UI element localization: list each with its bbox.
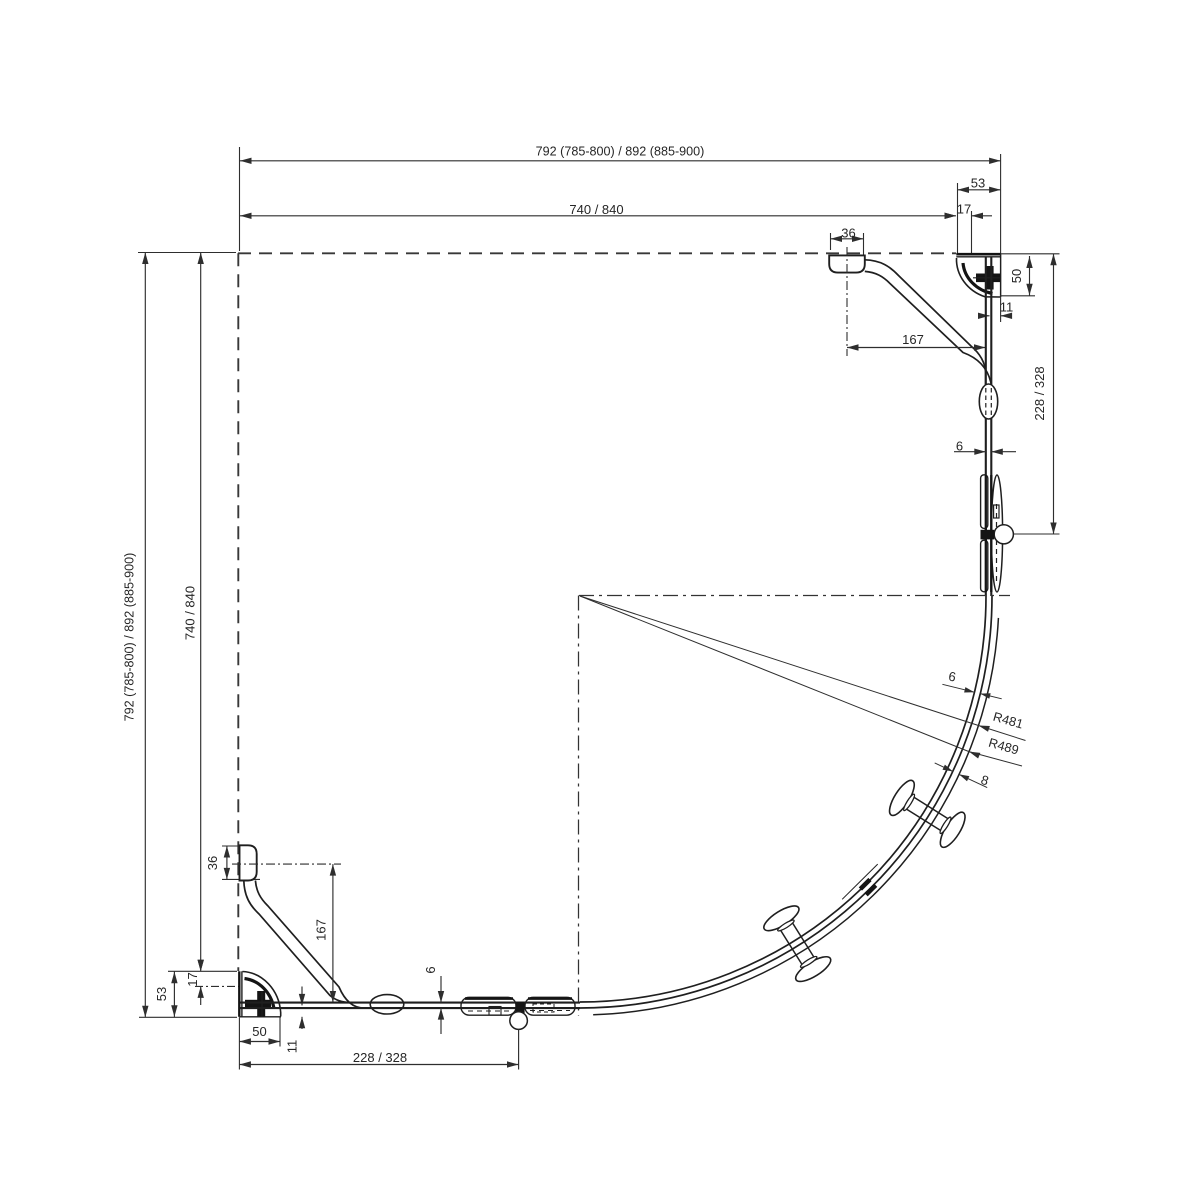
svg-text:11: 11 <box>1000 300 1014 315</box>
svg-text:740 / 840: 740 / 840 <box>569 202 623 217</box>
svg-text:6: 6 <box>956 439 963 454</box>
svg-text:11: 11 <box>285 1040 300 1054</box>
svg-text:36: 36 <box>841 226 855 241</box>
svg-text:50: 50 <box>1009 269 1024 283</box>
svg-text:740 / 840: 740 / 840 <box>183 586 198 640</box>
svg-text:17: 17 <box>957 202 971 217</box>
svg-text:792 (785-800) / 892 (885-900): 792 (785-800) / 892 (885-900) <box>123 553 137 722</box>
svg-text:6: 6 <box>423 966 438 973</box>
svg-text:167: 167 <box>314 919 329 941</box>
svg-text:228 / 328: 228 / 328 <box>353 1050 407 1065</box>
svg-text:228 / 328: 228 / 328 <box>1032 366 1047 420</box>
svg-text:53: 53 <box>154 987 169 1001</box>
svg-text:167: 167 <box>902 332 924 347</box>
svg-text:17: 17 <box>185 972 200 986</box>
svg-text:792 (785-800) / 892 (885-900): 792 (785-800) / 892 (885-900) <box>536 145 705 159</box>
svg-text:50: 50 <box>252 1024 266 1039</box>
svg-text:36: 36 <box>205 856 220 870</box>
svg-text:53: 53 <box>971 176 985 191</box>
